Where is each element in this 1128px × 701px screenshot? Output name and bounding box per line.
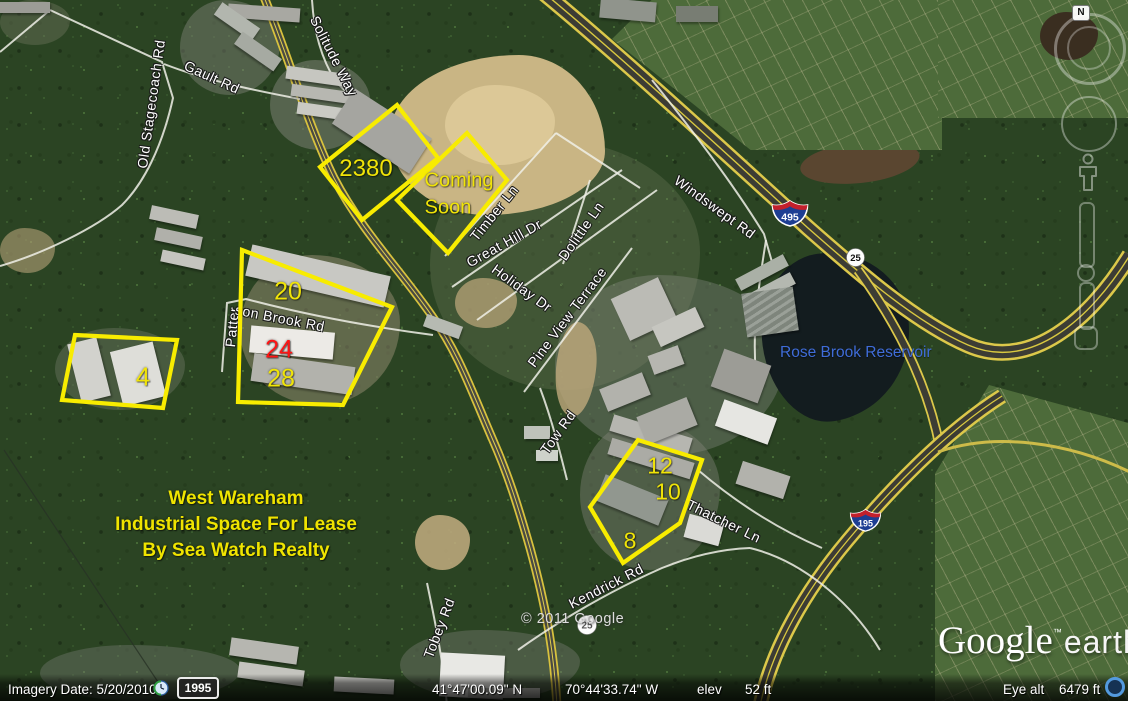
parcel-outline-12-10-8 <box>590 440 702 563</box>
parcel-label-12: 12 <box>647 453 673 480</box>
elevation-label: elev <box>697 682 722 697</box>
google-attribution: © 2011 Google <box>521 611 624 627</box>
zoom-slider[interactable] <box>1072 200 1102 350</box>
parcel-label-20: 20 <box>274 278 302 307</box>
compass-north-badge[interactable]: N <box>1072 5 1090 21</box>
zoom-slider-track-lower[interactable] <box>1079 282 1095 330</box>
parcel-label-24: 24 <box>265 336 293 365</box>
parcel-label-4: 4 <box>136 362 150 393</box>
promo-text: West Wareham Industrial Space For Lease … <box>105 486 367 564</box>
time-clock-icon[interactable] <box>153 680 169 696</box>
eye-altitude-value: 6479 ft <box>1059 682 1100 697</box>
parcel-label-coming: Coming <box>425 170 494 193</box>
compass-ring-inner[interactable] <box>1067 26 1111 70</box>
logo-google: Google <box>938 619 1053 662</box>
parcel-label-2380: 2380 <box>339 155 392 183</box>
zoom-slider-end[interactable] <box>1074 326 1098 350</box>
elevation-value: 52 ft <box>745 682 771 697</box>
coordinates-latitude: 41°47'00.09" N <box>432 682 522 697</box>
parcel-outlines <box>0 0 1128 701</box>
zoom-slider-knob[interactable] <box>1077 264 1095 282</box>
parcel-outline-20-24-28 <box>238 250 392 405</box>
imagery-date: Imagery Date: 5/20/2010 <box>8 682 157 697</box>
google-earth-logo: Google™earth <box>938 618 1128 663</box>
logo-tm: ™ <box>1053 627 1062 637</box>
time-range-badge[interactable]: 1995 <box>177 677 219 699</box>
map-viewport[interactable]: Old Stagecoach Rd Gault Rd Solitude Way … <box>0 0 1128 701</box>
streaming-indicator-icon <box>1105 677 1125 697</box>
eye-altitude-label: Eye alt <box>1003 682 1044 697</box>
parcel-label-soon: Soon <box>425 197 472 220</box>
logo-earth: earth <box>1064 624 1128 660</box>
promo-line-1: West Wareham <box>105 486 367 512</box>
parcel-label-28: 28 <box>267 365 295 394</box>
status-bar: Imagery Date: 5/20/2010 1995 41°47'00.09… <box>0 674 1128 701</box>
parcel-outline-coming-soon <box>397 133 507 253</box>
coordinates-longitude: 70°44'33.74" W <box>565 682 658 697</box>
promo-line-2: Industrial Space For Lease <box>105 512 367 538</box>
zoom-slider-track-upper[interactable] <box>1079 202 1095 268</box>
parcel-label-10: 10 <box>655 479 681 506</box>
promo-line-3: By Sea Watch Realty <box>105 538 367 564</box>
parcel-label-8: 8 <box>624 528 637 555</box>
parcel-outline-4 <box>62 335 177 408</box>
look-joystick-ring[interactable] <box>1061 96 1117 152</box>
pegman-icon[interactable] <box>1076 152 1100 194</box>
